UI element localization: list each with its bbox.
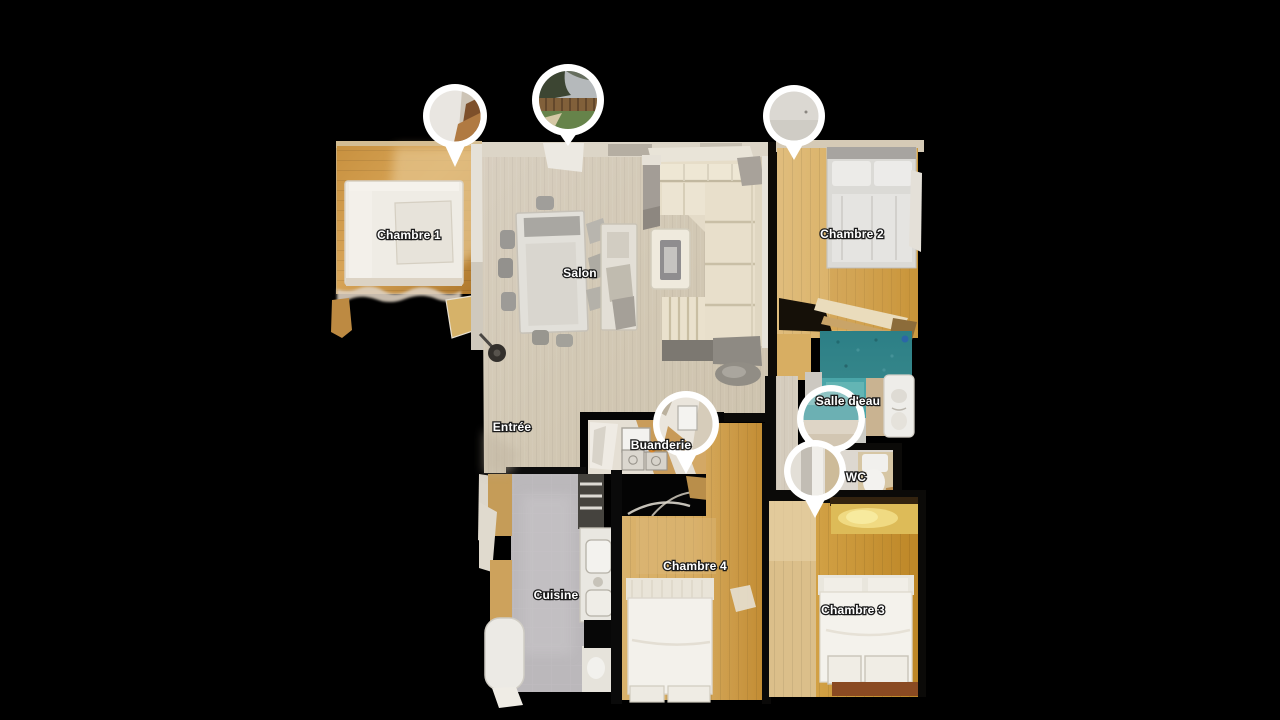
- svg-text:Cuisine: Cuisine: [534, 588, 579, 602]
- svg-text:Salon: Salon: [563, 266, 597, 280]
- svg-text:WC: WC: [846, 470, 867, 484]
- svg-text:Chambre 4: Chambre 4: [663, 559, 727, 573]
- svg-text:Salle d'eau: Salle d'eau: [816, 394, 880, 408]
- svg-text:Chambre 3: Chambre 3: [821, 603, 885, 617]
- svg-text:Chambre 2: Chambre 2: [820, 227, 884, 241]
- svg-text:Entrée: Entrée: [493, 420, 532, 434]
- svg-text:Buanderie: Buanderie: [631, 438, 692, 452]
- svg-text:Chambre 1: Chambre 1: [377, 228, 441, 242]
